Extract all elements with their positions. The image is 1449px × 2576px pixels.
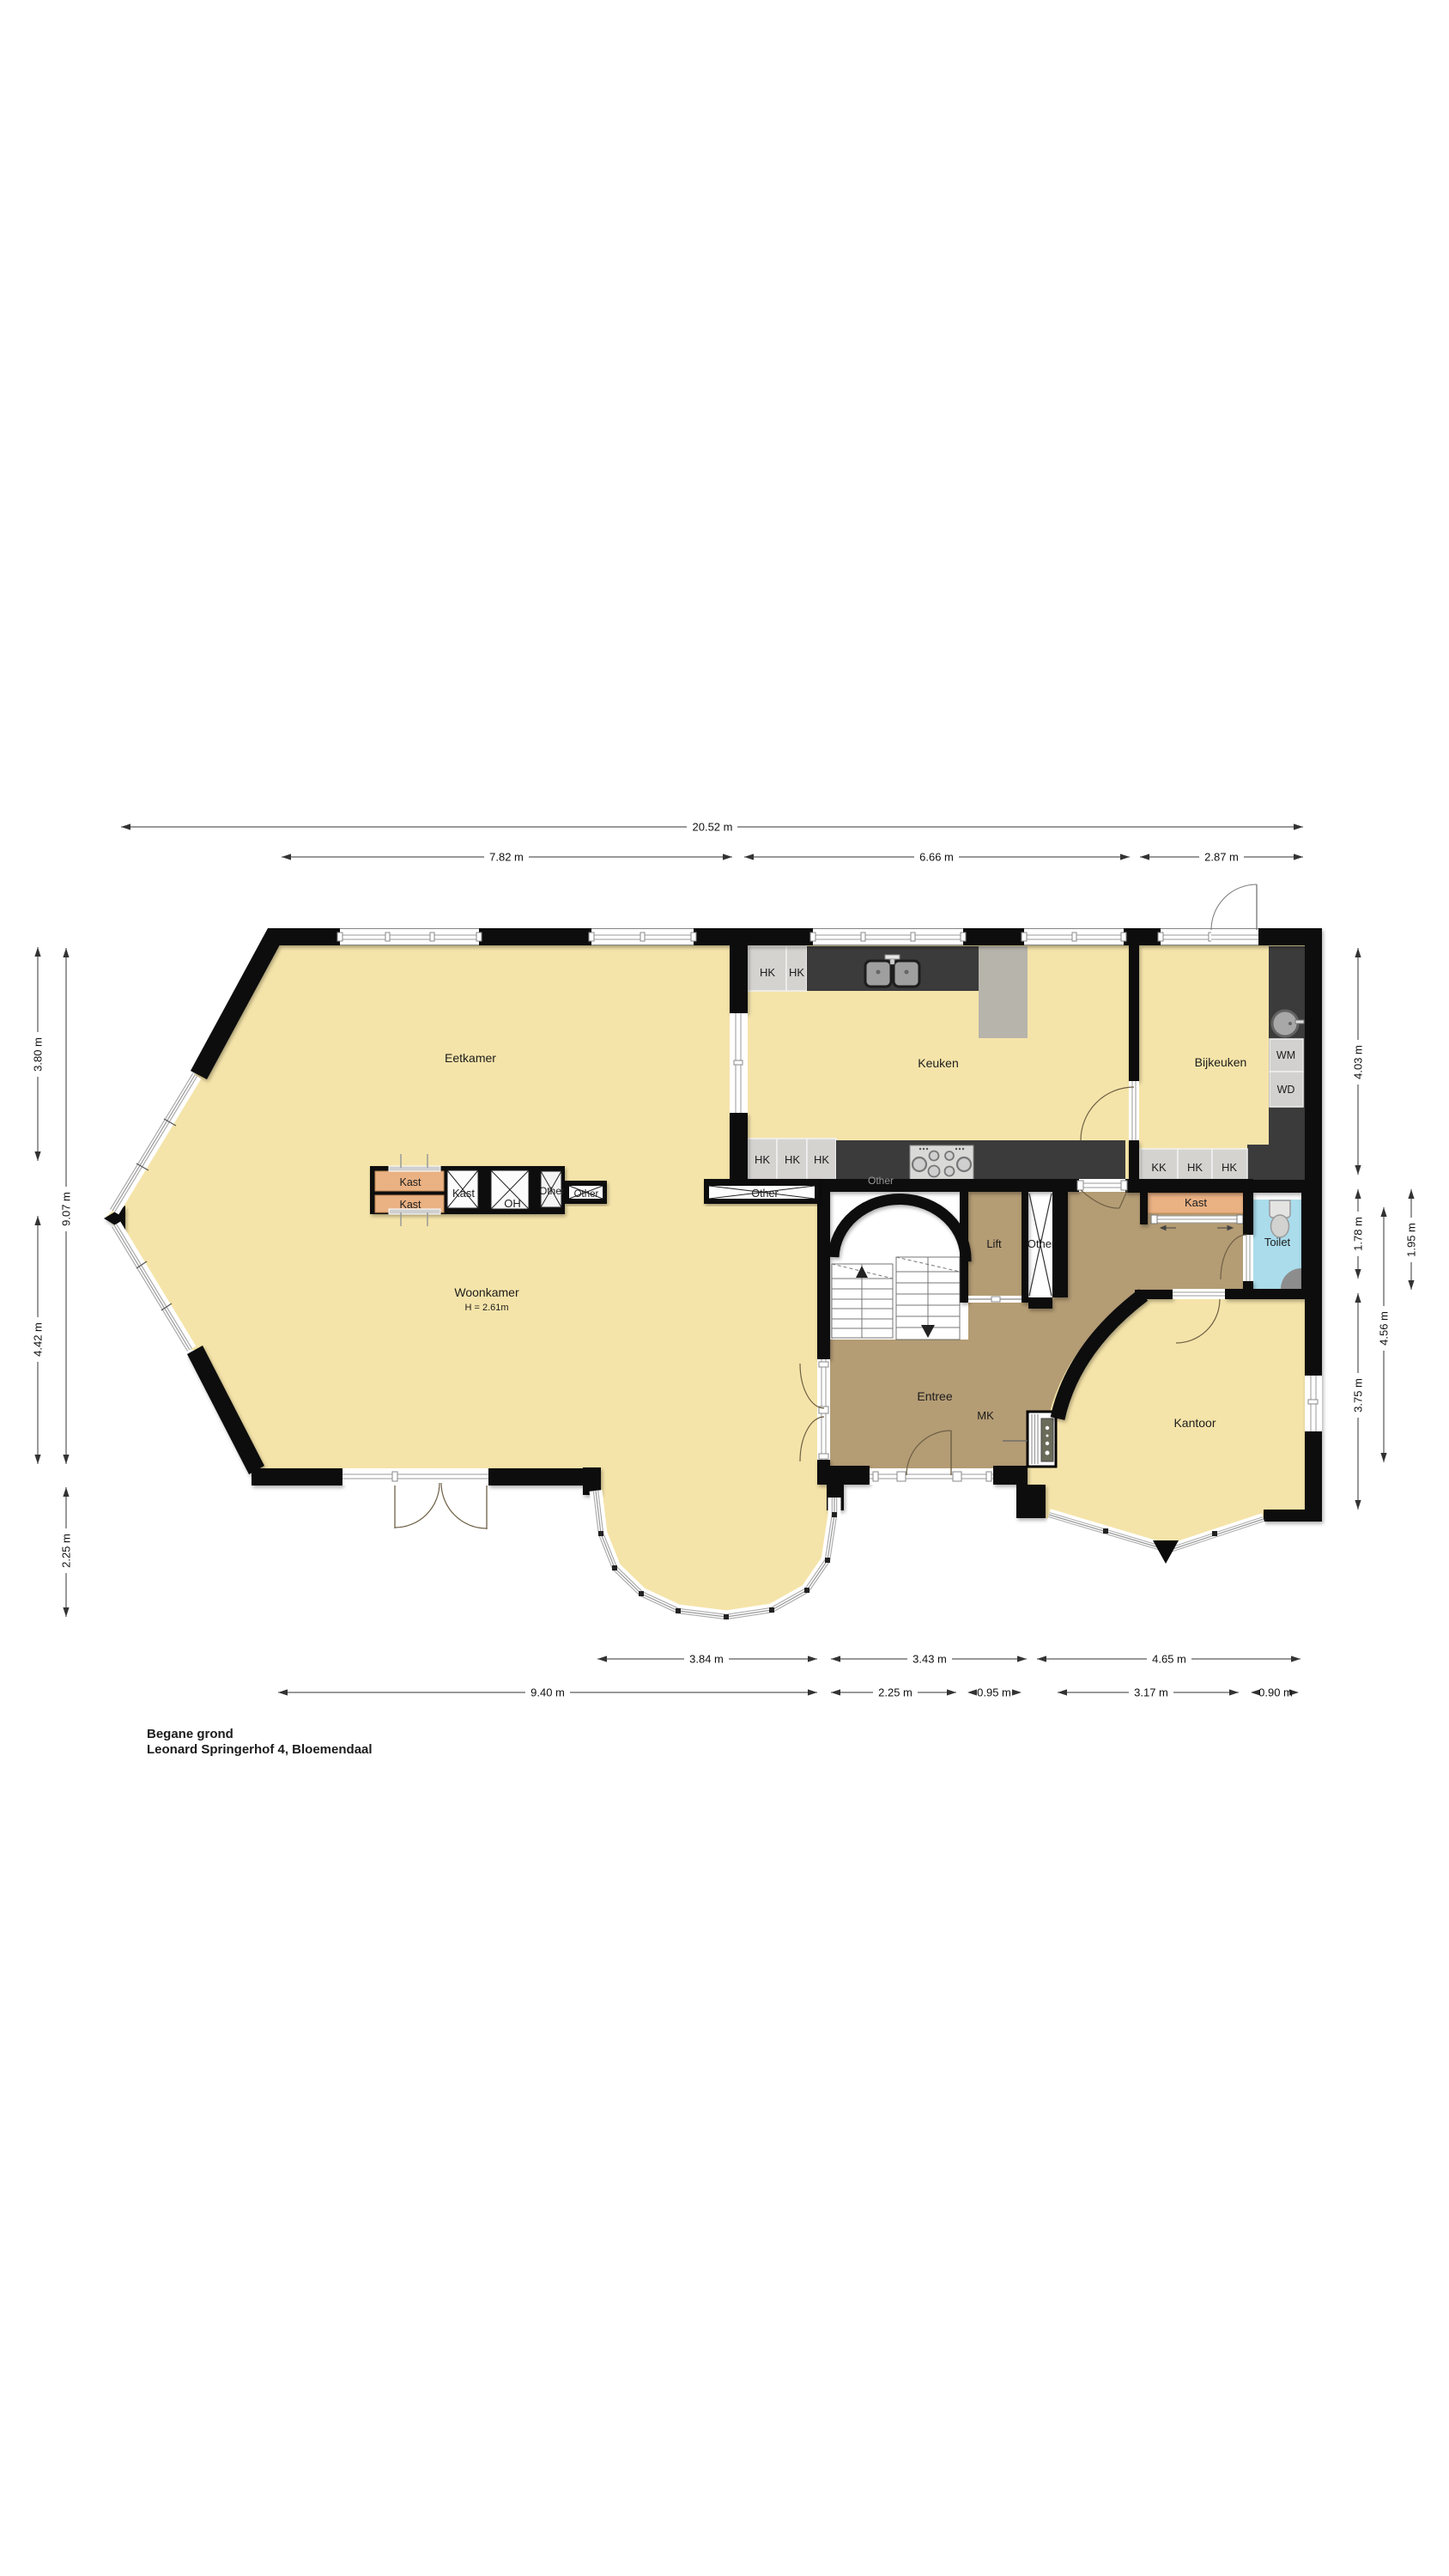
svg-text:Keuken: Keuken xyxy=(918,1056,958,1070)
svg-text:3.75 m: 3.75 m xyxy=(1352,1378,1365,1413)
svg-text:Other: Other xyxy=(868,1175,894,1187)
svg-text:Toilet: Toilet xyxy=(1264,1236,1291,1249)
svg-text:Entree: Entree xyxy=(917,1389,952,1403)
svg-text:3.17 m: 3.17 m xyxy=(1134,1686,1168,1699)
svg-text:7.82 m: 7.82 m xyxy=(489,851,524,864)
svg-text:HK: HK xyxy=(1187,1161,1203,1174)
svg-text:HK: HK xyxy=(760,966,775,979)
svg-text:Lift: Lift xyxy=(986,1237,1002,1250)
svg-text:6.66 m: 6.66 m xyxy=(919,851,954,864)
svg-text:Woonkamer: Woonkamer xyxy=(454,1285,519,1299)
svg-text:1.78 m: 1.78 m xyxy=(1352,1217,1365,1251)
svg-text:H = 2.61m: H = 2.61m xyxy=(464,1303,508,1313)
svg-text:KK: KK xyxy=(1151,1161,1167,1174)
svg-text:3.84 m: 3.84 m xyxy=(689,1653,724,1666)
svg-text:Kantoor: Kantoor xyxy=(1173,1416,1216,1430)
svg-text:0.90 m: 0.90 m xyxy=(1258,1686,1293,1699)
svg-text:20.52 m: 20.52 m xyxy=(693,821,733,834)
svg-text:Bijkeuken: Bijkeuken xyxy=(1195,1055,1247,1069)
svg-text:HK: HK xyxy=(755,1153,770,1166)
svg-text:HK: HK xyxy=(785,1153,800,1166)
svg-text:Kast: Kast xyxy=(1185,1196,1207,1209)
svg-text:HK: HK xyxy=(814,1153,829,1166)
svg-text:OH: OH xyxy=(504,1197,521,1210)
svg-text:4.56 m: 4.56 m xyxy=(1378,1311,1391,1346)
svg-text:Leonard Springerhof 4, Bloemen: Leonard Springerhof 4, Bloemendaal xyxy=(147,1742,373,1757)
svg-text:9.07 m: 9.07 m xyxy=(60,1192,73,1226)
svg-text:Kast: Kast xyxy=(399,1176,421,1188)
svg-text:1.95 m: 1.95 m xyxy=(1405,1223,1418,1257)
svg-text:4.42 m: 4.42 m xyxy=(32,1322,45,1357)
svg-text:Other: Other xyxy=(539,1185,565,1197)
svg-text:0.95 m: 0.95 m xyxy=(977,1686,1011,1699)
svg-text:Other: Other xyxy=(751,1188,778,1200)
svg-text:Kast: Kast xyxy=(399,1199,421,1211)
svg-text:3.43 m: 3.43 m xyxy=(912,1653,947,1666)
svg-text:Eetkamer: Eetkamer xyxy=(445,1051,496,1065)
svg-text:Other: Other xyxy=(574,1189,599,1200)
svg-text:MK: MK xyxy=(977,1409,994,1422)
svg-text:2.25 m: 2.25 m xyxy=(878,1686,912,1699)
svg-text:Other: Other xyxy=(1028,1237,1056,1250)
svg-text:HK: HK xyxy=(1222,1161,1237,1174)
svg-text:4.65 m: 4.65 m xyxy=(1152,1653,1186,1666)
svg-text:2.25 m: 2.25 m xyxy=(60,1534,73,1568)
svg-text:WM: WM xyxy=(1276,1049,1295,1061)
svg-text:2.87 m: 2.87 m xyxy=(1204,851,1239,864)
svg-text:9.40 m: 9.40 m xyxy=(530,1686,565,1699)
svg-text:Kast: Kast xyxy=(452,1187,475,1200)
svg-text:Begane grond: Begane grond xyxy=(147,1727,233,1741)
svg-text:HK: HK xyxy=(789,966,804,979)
svg-text:3.80 m: 3.80 m xyxy=(32,1037,45,1072)
svg-text:4.03 m: 4.03 m xyxy=(1352,1045,1365,1079)
svg-text:WD: WD xyxy=(1277,1084,1295,1096)
